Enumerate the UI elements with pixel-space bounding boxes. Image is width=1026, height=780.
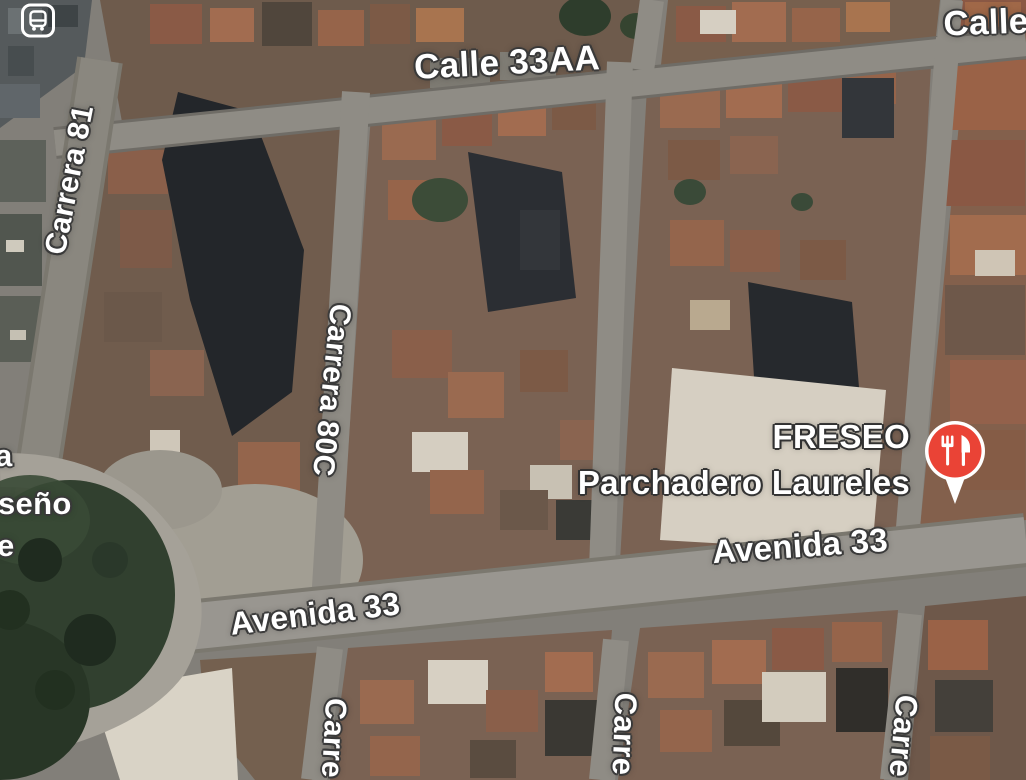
bus-wheel-right [40,27,44,31]
map-viewport[interactable]: Calle 33AA Calle Carrera 81 Carrera 80C … [0,0,1026,780]
restaurant-pin[interactable] [917,414,993,506]
road-label-calle-top-right: Calle [943,2,1026,45]
road-label-carrera-bottom-left: Carre [314,697,352,779]
poi-label-fragment-a[interactable]: a [0,438,13,474]
transit-station-icon[interactable] [18,0,58,44]
poi-label-fragment-seno[interactable]: seño [0,486,72,522]
road-label-carrera-bottom-right: Carre [881,693,924,778]
poi-label-freseo[interactable]: FRESEO Parchadero Laureles [570,414,910,506]
bus-wheel-left [32,27,36,31]
poi-title: FRESEO [570,414,910,460]
pin-circle [929,425,982,478]
road-label-carrera-bottom-mid: Carre [605,692,644,776]
poi-subtitle: Parchadero Laureles [570,460,910,506]
satellite-imagery [0,0,1026,780]
poi-label-fragment-e[interactable]: e [0,528,15,564]
